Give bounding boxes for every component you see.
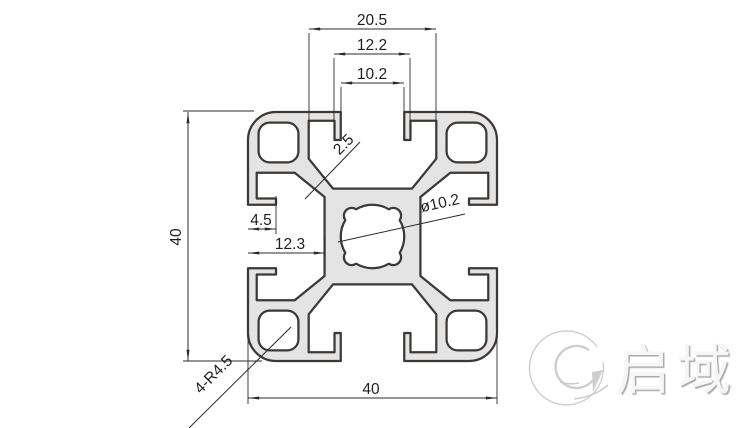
label-overall-height: 40 — [168, 228, 185, 246]
label-center-bore: ø10.2 — [419, 191, 461, 216]
label-slot-opening-width: 10.2 — [357, 66, 387, 83]
logo-center-dash — [560, 382, 579, 384]
label-slot-cavity-width: 20.5 — [357, 12, 387, 29]
brand-watermark-text: 启域 — [616, 341, 751, 401]
label-slot-step-width: 12.2 — [357, 37, 387, 54]
label-overall-width: 40 — [362, 381, 380, 398]
label-lip-depth: 4.5 — [250, 212, 272, 229]
label-slot-depth: 12.3 — [275, 236, 305, 253]
brand-logo-q-icon — [529, 331, 608, 405]
drawing-canvas: 20.5 12.2 10.2 40 40 4.5 12.3 2.5 ø10.2 … — [0, 0, 751, 428]
label-corner-radius: 4-R4.5 — [191, 352, 236, 397]
